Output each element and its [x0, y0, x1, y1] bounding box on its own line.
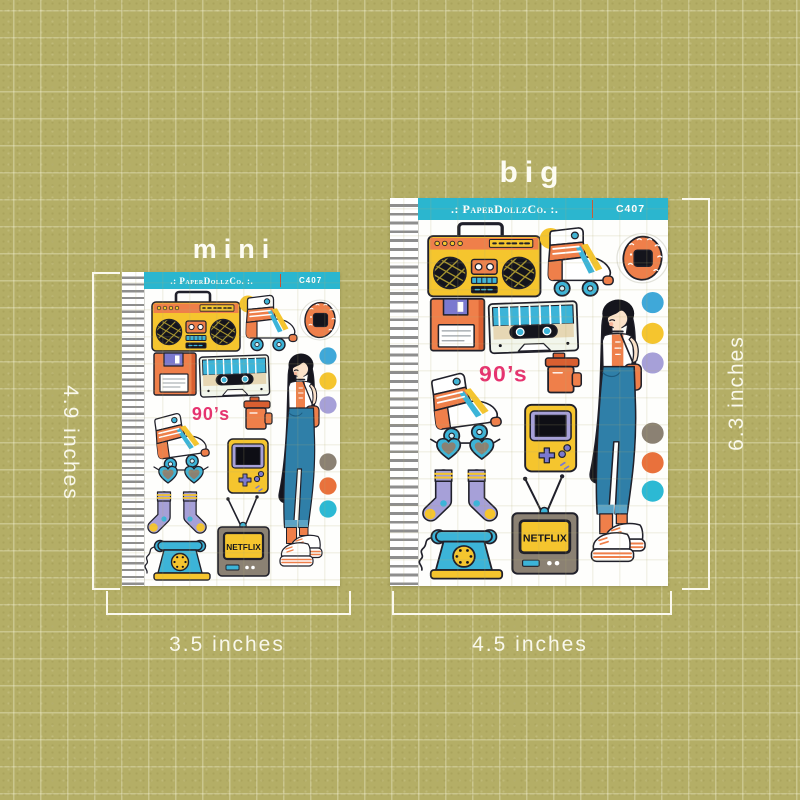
sheet-header: .: PaperDollzCo. :. C407 [144, 272, 340, 289]
brand-logo: .: PaperDollzCo. :. [144, 276, 280, 286]
sheet-header: .: PaperDollzCo. :. C407 [418, 198, 668, 220]
mini-width-bracket [106, 591, 351, 615]
big-width-label: 4.5 inches [430, 633, 630, 657]
sheet-edge-strip [122, 272, 145, 586]
mini-sticker-sheet: .: PaperDollzCo. :. C407 [122, 272, 340, 586]
sticker-artwork [418, 220, 668, 586]
product-code: C407 [593, 203, 668, 215]
sheet-edge-strip [390, 198, 419, 586]
sticker-artwork [144, 289, 340, 586]
big-size-label: big [390, 156, 668, 190]
product-comparison-image: mini big .: PaperDollzCo. :. C407 .: Pap… [0, 0, 800, 800]
product-code: C407 [281, 276, 340, 285]
brand-logo: .: PaperDollzCo. :. [418, 202, 592, 217]
mini-height-bracket [92, 272, 120, 590]
mini-height-label: 4.9 inches [58, 343, 82, 543]
big-height-label: 6.3 inches [725, 293, 749, 493]
mini-size-label: mini [122, 234, 340, 265]
big-sticker-sheet: .: PaperDollzCo. :. C407 [390, 198, 668, 586]
mini-width-label: 3.5 inches [127, 633, 327, 657]
big-width-bracket [392, 591, 672, 615]
big-height-bracket [682, 198, 710, 590]
